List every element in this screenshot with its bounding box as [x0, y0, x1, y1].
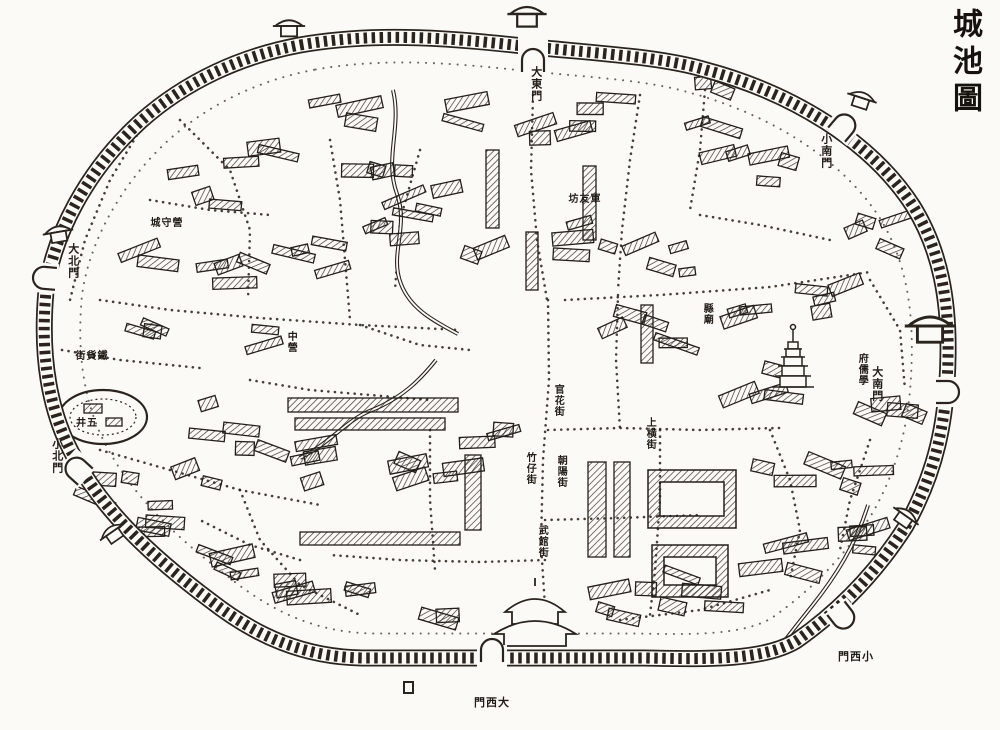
building-block [879, 211, 911, 228]
small-north-gate-label: 小北門 [51, 438, 63, 474]
building-block [598, 239, 617, 254]
county-temple-label: 縣廟 [701, 303, 712, 325]
building-block [209, 199, 242, 211]
corner-tower-icon [273, 20, 305, 36]
building-block [840, 478, 861, 495]
building-block [646, 257, 676, 276]
city-wall [44, 37, 948, 658]
guanhua-street-label: 官花街 [552, 384, 563, 417]
building-block [442, 114, 484, 132]
building-block [223, 422, 260, 437]
building-block [300, 472, 323, 491]
building-block [679, 267, 696, 277]
building-block [198, 395, 218, 411]
building-block [756, 176, 780, 187]
building-block [287, 589, 332, 605]
building-block [577, 103, 603, 115]
southeast-tower-icon [844, 88, 878, 112]
gate-arch-great-north [29, 262, 60, 294]
prefectural-confucian-school-label: 府儒學 [856, 353, 867, 386]
building-block [669, 241, 689, 254]
building-block [598, 317, 628, 339]
building-block [237, 252, 271, 274]
building-block [704, 601, 743, 613]
building-block [658, 597, 687, 616]
building-block [596, 602, 615, 617]
building-block [778, 153, 799, 171]
building-block [137, 255, 179, 272]
building-block [245, 336, 283, 354]
building-block [201, 476, 222, 490]
street-blocks [288, 150, 653, 557]
building-block [764, 390, 804, 405]
map-canvas [0, 0, 1000, 730]
building-block [774, 475, 816, 487]
building-block [315, 260, 351, 278]
building-block [854, 465, 894, 475]
gate-arch-great-south [934, 377, 962, 407]
building-block [274, 573, 306, 587]
city-map-page: 城池圖 大東門門西大大南門大北門小北門門西小小南門府儒學坊友軍城守營街貨鐵井五上… [0, 0, 1000, 730]
building-block [785, 563, 822, 584]
great-west-gate-label: 門西大 [474, 697, 510, 709]
great-south-gate-label: 大南門 [871, 366, 883, 402]
building-block [344, 113, 377, 131]
building-block [431, 179, 463, 198]
upper-cross-street-label: 上横街 [644, 417, 655, 450]
building-block [336, 96, 383, 117]
gate-arch-great-west [477, 639, 507, 667]
building-block [148, 501, 173, 510]
ironware-street-label: 街貨鐵 [76, 352, 109, 363]
wuguan-street-label: 武館街 [536, 525, 547, 558]
building-block [529, 131, 550, 146]
building-block [811, 303, 832, 320]
drum-tower-pavilion-icon [494, 578, 576, 646]
junyou-archway-label: 坊友軍 [569, 195, 602, 206]
building-block [235, 441, 254, 455]
great-east-gate-label: 大東門 [530, 66, 542, 102]
gate-tower-icon [507, 7, 546, 27]
five-wells-label: 井五 [76, 419, 98, 430]
building-block [224, 156, 259, 168]
building-block [459, 436, 495, 449]
building-block [251, 324, 278, 334]
building-block [254, 440, 289, 462]
building-block [751, 459, 775, 476]
building-block [844, 220, 867, 239]
building-block [853, 545, 876, 555]
building-block [553, 248, 590, 262]
building-block [390, 232, 420, 246]
building-block [596, 92, 636, 104]
wall-pier-mark [404, 682, 413, 693]
gate-arch-small-west [823, 597, 864, 638]
small-south-gate-label: 小南門 [820, 133, 832, 169]
great-north-gate-label: 大北門 [67, 243, 79, 279]
city-guard-camp-label: 城守營 [151, 219, 184, 230]
map-title: 城池圖 [942, 8, 986, 119]
building-block [394, 165, 412, 177]
building-block [876, 239, 904, 259]
building-block [588, 579, 631, 600]
building-block [738, 558, 782, 576]
building-block [493, 422, 514, 437]
small-west-gate-label: 門西小 [838, 651, 874, 663]
building-block [213, 277, 257, 290]
building-block [622, 232, 659, 255]
zhuzai-street-label: 竹仔街 [524, 452, 535, 485]
building-block [371, 220, 393, 233]
building-block [167, 165, 199, 179]
building-block [902, 403, 927, 424]
chaoyang-street-label: 朝陽街 [555, 455, 566, 488]
building-block [663, 565, 700, 585]
middle-camp-label: 中營 [285, 331, 296, 353]
building-block [121, 471, 139, 485]
building-block [189, 428, 226, 442]
building-block [445, 92, 490, 113]
